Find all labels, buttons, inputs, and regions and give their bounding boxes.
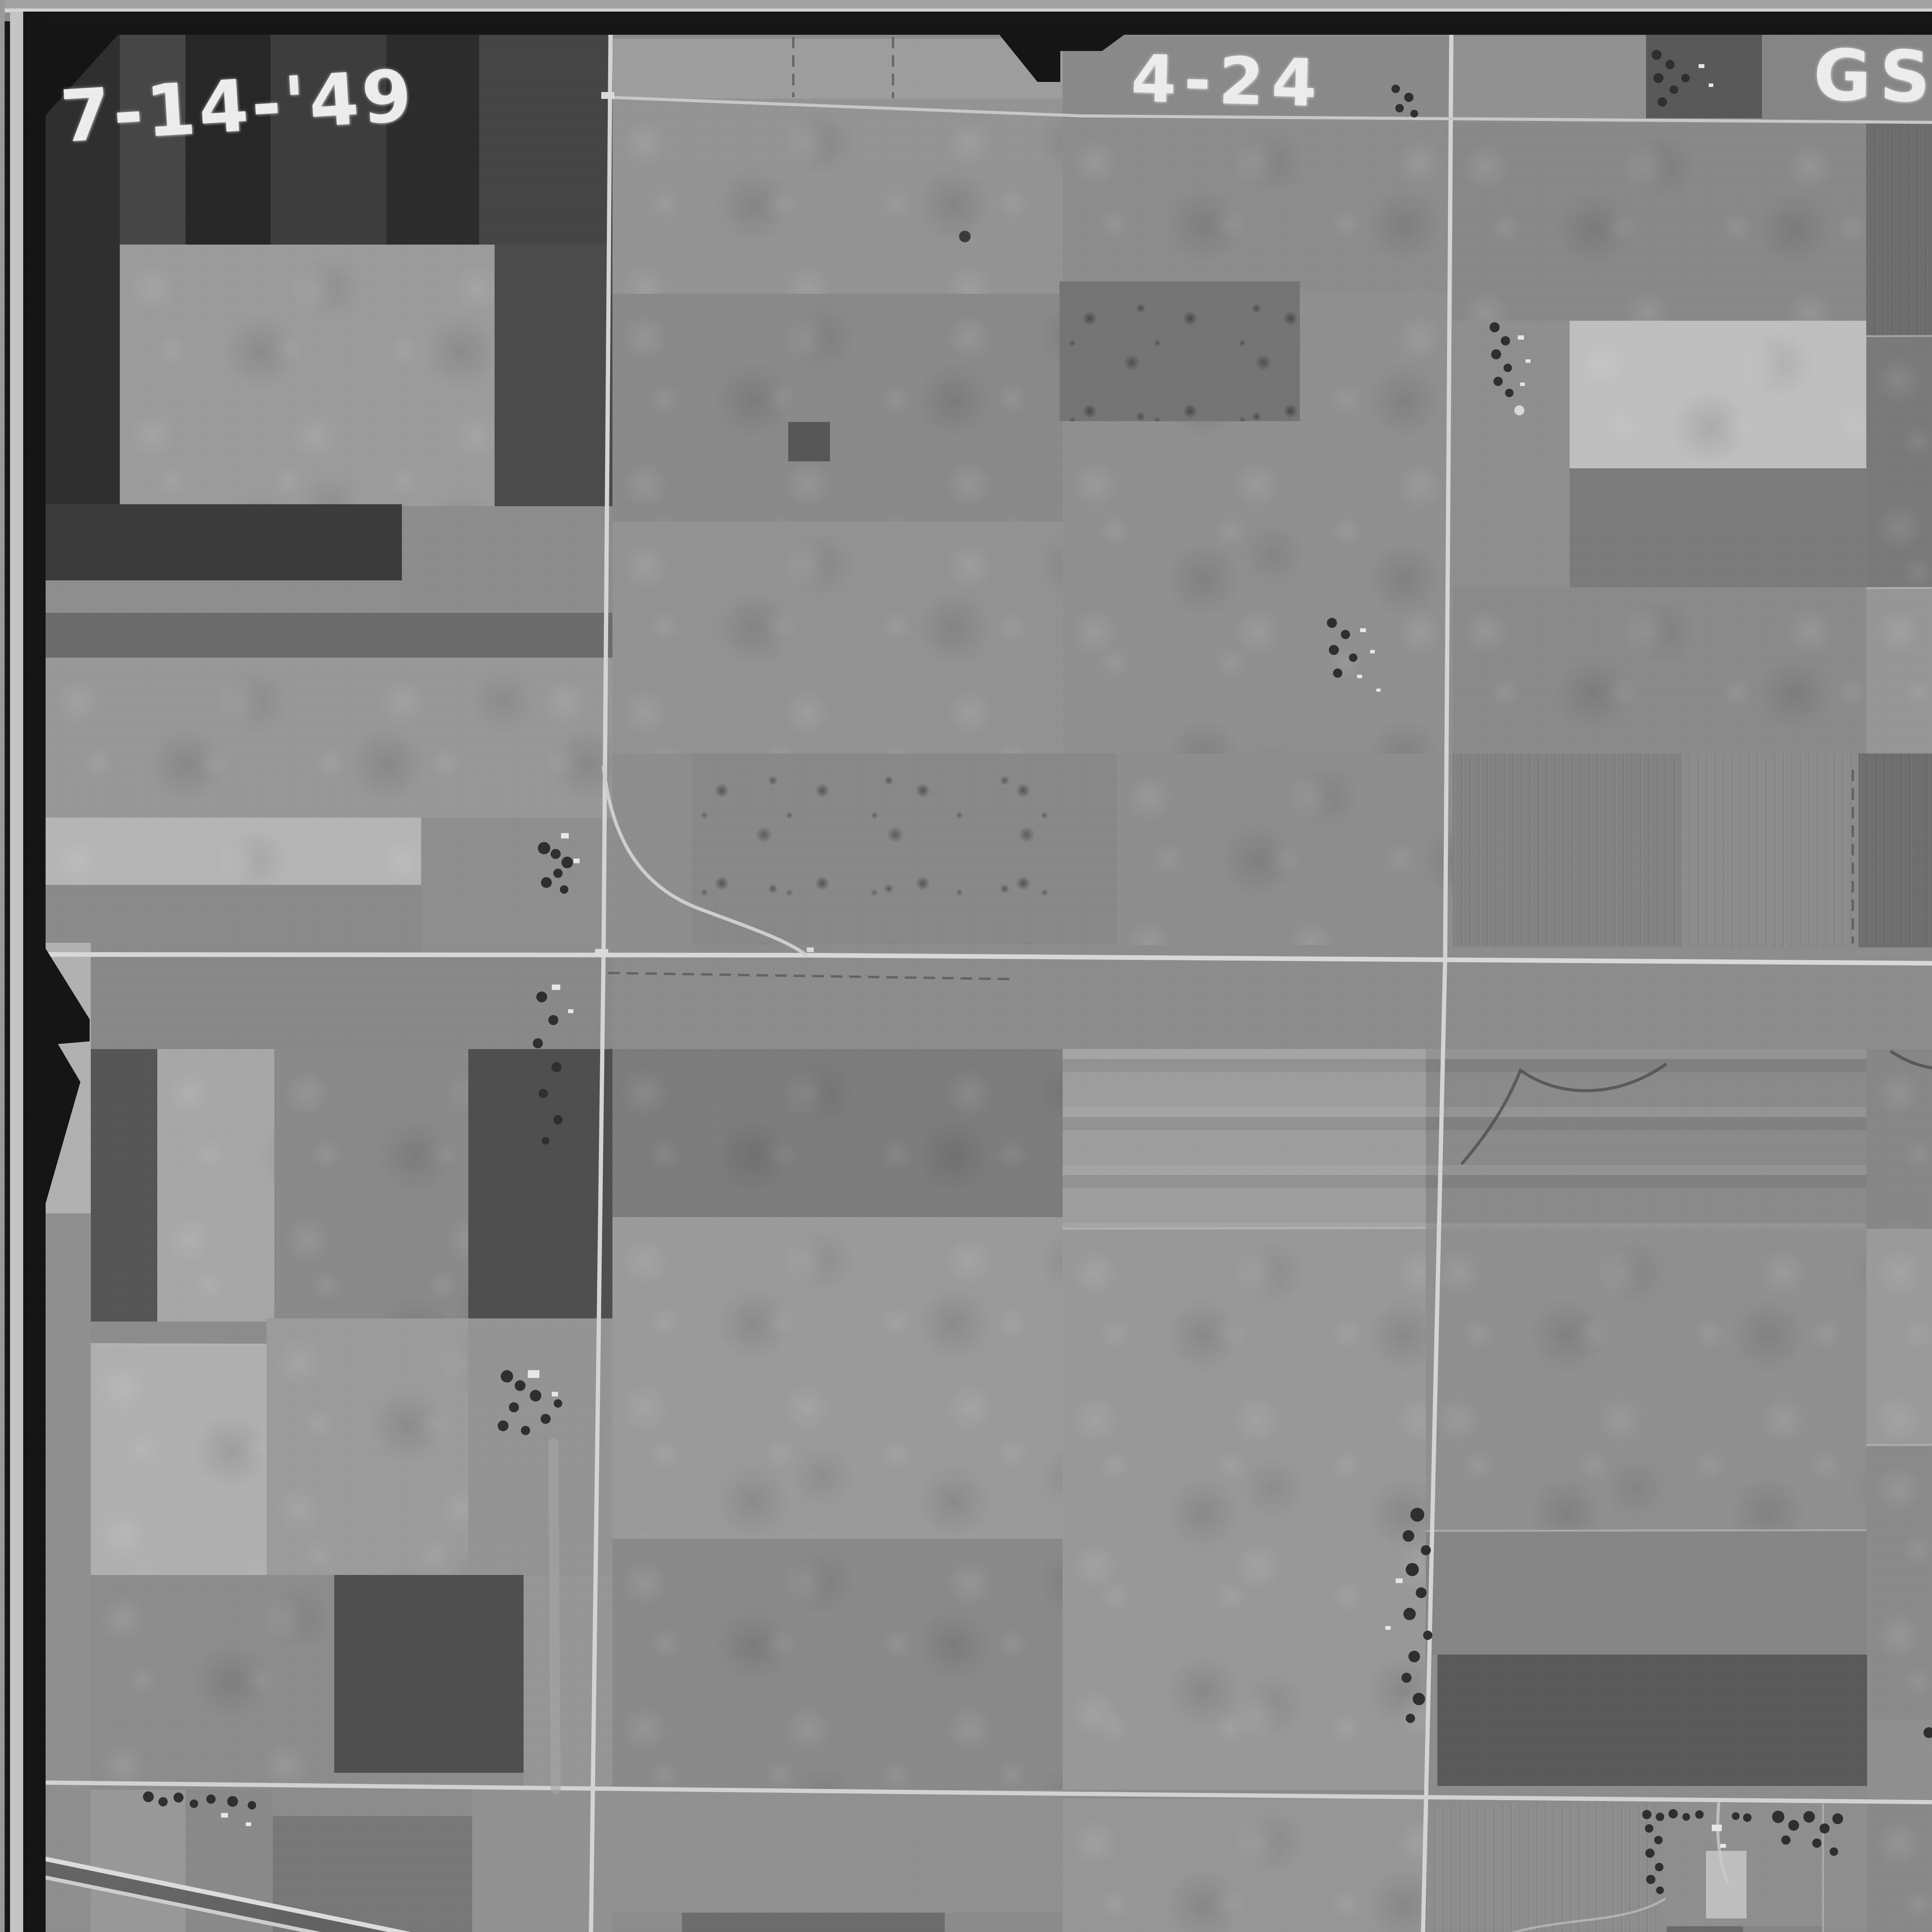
path-shape	[91, 1344, 267, 1345]
path-shape	[1917, 1874, 1932, 1932]
rect-shape	[552, 1392, 558, 1396]
circle-shape	[1655, 1863, 1663, 1871]
circle-shape	[553, 869, 563, 878]
rect-shape	[1370, 650, 1375, 653]
circle-shape	[1830, 1847, 1838, 1856]
circle-shape	[1514, 405, 1524, 415]
circle-shape	[173, 1793, 184, 1803]
rect-shape	[221, 1813, 228, 1818]
circle-shape	[1408, 1651, 1420, 1662]
circle-shape	[541, 1414, 551, 1424]
circle-shape	[1333, 668, 1342, 678]
circle-shape	[539, 1089, 548, 1098]
circle-shape	[1656, 1813, 1664, 1821]
path-shape	[1426, 1530, 1866, 1531]
creek-lines	[1463, 968, 1932, 1932]
road-north-south-west	[589, 35, 611, 1932]
frame-left-line	[5, 21, 10, 1932]
circle-shape	[1410, 1508, 1424, 1522]
circle-shape	[1401, 1673, 1412, 1683]
rect-shape	[1720, 1844, 1726, 1848]
circle-shape	[542, 1137, 549, 1145]
farm-driveway	[1718, 1804, 1727, 1882]
circle-shape	[1493, 377, 1503, 386]
hedgerow-lines-dark	[608, 37, 1853, 979]
circle-shape	[1812, 1838, 1821, 1848]
circle-shape	[1642, 1810, 1651, 1819]
circle-shape	[1665, 60, 1675, 69]
circle-shape	[1491, 349, 1501, 359]
circle-shape	[206, 1794, 216, 1804]
annotation-photo-index: 4-24	[1130, 41, 1325, 121]
circle-shape	[143, 1791, 154, 1802]
film-edge-top	[0, 0, 1932, 9]
rect-shape	[1385, 1626, 1391, 1630]
rect-shape	[568, 1009, 573, 1013]
circle-shape	[959, 231, 971, 242]
circle-shape	[530, 1390, 541, 1401]
path-shape	[1063, 1228, 1426, 1229]
circle-shape	[554, 1399, 562, 1408]
farm-lane	[553, 1443, 556, 1789]
circle-shape	[1781, 1835, 1791, 1845]
circle-shape	[1668, 1809, 1678, 1818]
circle-shape	[1646, 1875, 1655, 1884]
circle-shape	[1832, 1813, 1843, 1824]
road-north-south-east	[1419, 36, 1451, 1932]
frame-top-bar	[23, 12, 1932, 35]
circle-shape	[548, 1015, 558, 1025]
rect-shape	[561, 833, 569, 838]
circle-shape	[1923, 1727, 1932, 1738]
circle-shape	[1413, 1693, 1425, 1705]
road-east-west-south	[0, 1782, 1932, 1804]
circle-shape	[1410, 110, 1418, 117]
circle-shape	[1501, 336, 1510, 345]
circle-shape	[1403, 1530, 1414, 1542]
rect-shape	[1518, 335, 1524, 340]
rect-shape	[246, 1822, 251, 1826]
tree-clusters	[143, 50, 1932, 1894]
path-shape	[1509, 1899, 1665, 1932]
rect-shape	[1396, 1578, 1403, 1583]
circle-shape	[1341, 630, 1350, 639]
path-shape	[1463, 1065, 1665, 1163]
circle-shape	[1788, 1820, 1799, 1831]
circle-shape	[1404, 93, 1413, 102]
road-east-west-main	[0, 954, 1932, 964]
fiducial-mark-top	[999, 34, 1125, 82]
annotation-series: GS-IV	[1813, 34, 1932, 121]
path-shape	[1866, 1444, 1932, 1445]
highway-bed	[21, 1863, 1207, 1932]
fiducial-marks	[23, 34, 1932, 1932]
circle-shape	[1505, 389, 1514, 397]
circle-shape	[1820, 1823, 1830, 1833]
rect-shape	[595, 949, 608, 955]
circle-shape	[248, 1801, 256, 1810]
circle-shape	[1406, 1714, 1415, 1723]
rect-shape	[1699, 64, 1704, 68]
rect-shape	[552, 985, 560, 990]
circle-shape	[158, 1797, 168, 1806]
circle-shape	[1651, 50, 1662, 60]
circle-shape	[1645, 1824, 1653, 1833]
roads	[0, 35, 1932, 1932]
frame-left-bar	[23, 22, 46, 1932]
circle-shape	[1803, 1811, 1815, 1823]
fiducial-mark-left	[44, 947, 90, 1207]
rect-shape	[528, 1370, 539, 1378]
circle-shape	[1772, 1811, 1784, 1823]
circle-shape	[553, 1115, 563, 1124]
circle-shape	[1421, 1545, 1431, 1555]
circle-shape	[1327, 618, 1337, 628]
circle-shape	[1490, 322, 1500, 332]
circle-shape	[536, 992, 547, 1002]
rect-shape	[1360, 628, 1366, 632]
circle-shape	[1670, 85, 1678, 94]
circle-shape	[1743, 1813, 1752, 1822]
circle-shape	[551, 1062, 561, 1072]
circle-shape	[1423, 1631, 1432, 1640]
circle-shape	[1645, 1849, 1655, 1858]
circle-shape	[1653, 73, 1663, 83]
circle-shape	[1732, 1812, 1740, 1820]
rect-shape	[1712, 1825, 1722, 1831]
circle-shape	[1656, 1886, 1664, 1894]
circle-shape	[1681, 74, 1690, 82]
circle-shape	[1695, 1810, 1704, 1819]
circle-shape	[515, 1380, 526, 1391]
circle-shape	[560, 885, 568, 894]
path-shape	[1891, 1052, 1932, 1069]
circle-shape	[501, 1370, 513, 1383]
road-curved-branch	[604, 767, 806, 955]
circle-shape	[509, 1402, 519, 1412]
rect-shape	[573, 859, 580, 863]
circle-shape	[1349, 653, 1357, 662]
circle-shape	[1658, 97, 1667, 107]
rect-shape	[601, 92, 614, 99]
circle-shape	[551, 849, 561, 859]
rect-shape	[807, 947, 814, 952]
rect-shape	[1709, 83, 1713, 87]
film-edge-left-light	[10, 12, 23, 1932]
circle-shape	[1329, 645, 1339, 655]
circle-shape	[498, 1420, 509, 1431]
aerial-photo: 7-14-'49 4-24 GS-IV	[0, 0, 1932, 1932]
circle-shape	[1391, 85, 1400, 93]
circle-shape	[1406, 1563, 1419, 1576]
circle-shape	[561, 857, 573, 868]
circle-shape	[533, 1038, 543, 1048]
path-shape	[1866, 587, 1932, 588]
field-boundary-lines-light	[91, 335, 1932, 1932]
roads-and-marks-layer	[0, 0, 1932, 1932]
circle-shape	[538, 842, 550, 854]
circle-shape	[1503, 364, 1512, 372]
circle-shape	[1654, 1836, 1663, 1844]
path-shape	[608, 973, 1012, 979]
circle-shape	[190, 1799, 198, 1808]
film-edge-left	[0, 0, 5, 1932]
circle-shape	[1403, 1608, 1416, 1620]
circle-shape	[541, 877, 552, 888]
circle-shape	[1416, 1587, 1427, 1598]
circle-shape	[521, 1426, 530, 1435]
highway-lane-north	[21, 1854, 1222, 1932]
rect-shape	[1357, 675, 1362, 678]
rect-shape	[1526, 359, 1531, 363]
circle-shape	[227, 1796, 238, 1807]
rect-shape	[1520, 383, 1525, 386]
rect-shape	[1376, 689, 1381, 692]
circle-shape	[1682, 1813, 1690, 1821]
path-shape	[1866, 335, 1932, 336]
circle-shape	[1395, 104, 1404, 112]
